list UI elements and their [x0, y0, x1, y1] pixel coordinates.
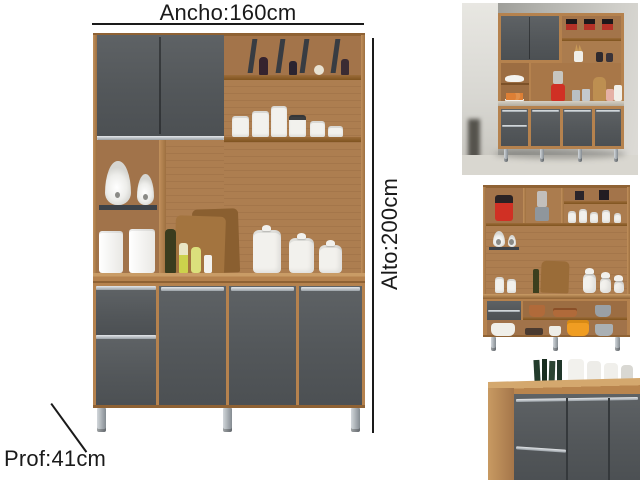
product-gallery: Ancho:160cm Alto:200cm Prof:41cm	[0, 0, 640, 480]
spice-jar	[328, 126, 343, 137]
spice-jar	[252, 111, 269, 137]
dark-item	[599, 190, 609, 200]
red-label-box	[602, 19, 613, 30]
square-canister	[129, 229, 155, 273]
t2-round-canister	[583, 273, 596, 293]
gray-pot	[595, 305, 611, 317]
copper-pot	[529, 305, 545, 317]
mini-base-door	[595, 109, 621, 146]
thumbnail-styled-room[interactable]	[462, 3, 638, 175]
mini-handle	[596, 110, 620, 112]
thumbnail-column	[460, 0, 640, 480]
mini-handle	[502, 125, 527, 127]
jar-shelf	[224, 137, 361, 142]
cabinet-leg	[223, 408, 232, 432]
book	[533, 360, 540, 382]
t2-top-right-back	[564, 188, 627, 201]
t2-base-drawer	[487, 301, 521, 321]
copper-pan	[553, 308, 577, 317]
closeup-door-gap	[608, 398, 610, 480]
square-canister	[99, 231, 123, 273]
t2-vase-shelf	[489, 247, 519, 250]
spice-jar	[310, 121, 325, 137]
blender-jar	[553, 71, 563, 84]
closeup-doors	[514, 394, 640, 480]
dark-cake	[525, 328, 543, 335]
dark-bottle	[289, 61, 297, 75]
utensil-holder	[572, 90, 580, 101]
door-handle	[301, 287, 360, 291]
mini-door-gap	[529, 17, 530, 59]
red-label-box	[584, 19, 595, 30]
width-dimension-label: Ancho:160cm	[92, 1, 364, 24]
t2-vase	[508, 235, 516, 247]
gray-pot	[595, 324, 613, 336]
cabinet-leg	[351, 408, 360, 432]
small-canister	[590, 212, 598, 223]
utensil-holder	[582, 89, 590, 101]
mini-handle	[564, 110, 591, 112]
t2-leg	[553, 337, 558, 351]
mini-leg	[614, 149, 618, 162]
utensil-cup	[574, 51, 583, 62]
mini-handle	[532, 110, 559, 112]
pink-jar	[606, 89, 614, 101]
closeup-handle	[516, 397, 638, 402]
coffee-maker	[495, 195, 513, 221]
mini-leg	[540, 149, 544, 162]
round-canister-small	[319, 245, 342, 273]
door-handle	[161, 287, 224, 291]
spice-jar	[289, 115, 306, 137]
red-label-box	[566, 19, 577, 30]
small-canister	[614, 213, 621, 223]
dark-jar	[596, 52, 603, 62]
height-dimension-label: Alto:200cm	[378, 160, 401, 290]
mini-handle	[502, 110, 527, 112]
mini-cabinet	[498, 13, 624, 165]
plate-stack	[505, 75, 524, 82]
countertop	[93, 273, 365, 283]
t2-handle	[488, 310, 520, 312]
vase-shelf	[99, 205, 157, 210]
white-casserole	[491, 323, 515, 336]
fruits	[506, 93, 523, 100]
mini-base-door	[563, 109, 592, 146]
t2-jar	[495, 277, 504, 293]
t2-leg	[615, 337, 620, 351]
base-door-2	[229, 286, 296, 405]
thumbnail-open-shelves[interactable]	[483, 185, 630, 352]
thumbnail-base-closeup[interactable]	[488, 358, 640, 480]
mini-leg	[504, 149, 508, 162]
blender-top	[537, 191, 547, 207]
white-jar	[614, 85, 622, 101]
mini-shelf	[501, 83, 529, 85]
cabinet-leg	[97, 408, 106, 432]
spice-jar	[232, 116, 249, 137]
t2-jar	[507, 279, 516, 293]
dark-bottle	[341, 59, 349, 75]
book	[542, 359, 547, 382]
mini-base-door	[531, 109, 560, 146]
small-canister	[602, 210, 610, 223]
blender-body	[535, 207, 549, 221]
spice-jar	[271, 106, 287, 137]
dark-bottle	[259, 57, 268, 75]
upper-door-gap	[159, 37, 161, 134]
hutch-right-side	[361, 35, 365, 273]
base-door-1	[159, 286, 226, 405]
dark-item	[575, 191, 584, 200]
small-canister	[579, 209, 587, 223]
mini-upper-doors	[501, 16, 559, 60]
upper-cabinet-doors	[97, 35, 224, 136]
t2-board	[540, 261, 569, 294]
oil-cruet	[191, 247, 201, 273]
closeup-door-gap	[566, 398, 568, 480]
t2-round-canister	[600, 277, 611, 293]
base-drawer-front	[96, 290, 156, 335]
small-white-pot	[549, 326, 561, 336]
t2-round-canister	[614, 280, 624, 293]
kitchen-cabinet	[93, 33, 365, 433]
round-canister-medium	[289, 238, 314, 273]
orange-pot	[567, 320, 589, 336]
closeup-side-panel	[488, 388, 514, 480]
t2-leg	[491, 337, 496, 351]
t2-vase	[493, 231, 505, 247]
green-bottle	[533, 269, 539, 293]
book	[557, 360, 562, 382]
decor-sphere	[314, 65, 324, 75]
mini-cutting-board	[593, 77, 606, 101]
dark-jar	[606, 53, 613, 62]
red-blender-body	[551, 84, 565, 101]
base-door-3	[299, 286, 362, 405]
height-dimension-line	[372, 38, 374, 433]
closeup-drawer-handle	[516, 446, 566, 452]
book	[549, 361, 556, 382]
round-canister-large	[253, 230, 281, 273]
oil-bottle-dark	[165, 229, 176, 273]
depth-dimension-label: Prof:41cm	[4, 447, 106, 470]
width-dimension-line	[92, 23, 364, 25]
mini-base-drawer	[501, 109, 528, 146]
oil-bottle	[179, 243, 188, 273]
main-product-image[interactable]: Ancho:160cm Alto:200cm Prof:41cm	[0, 0, 460, 480]
door-handle	[231, 287, 294, 291]
base-lower-drawer-front	[96, 339, 156, 405]
mini-leg	[578, 149, 582, 162]
salt-shaker	[204, 255, 212, 273]
small-canister	[568, 211, 576, 223]
